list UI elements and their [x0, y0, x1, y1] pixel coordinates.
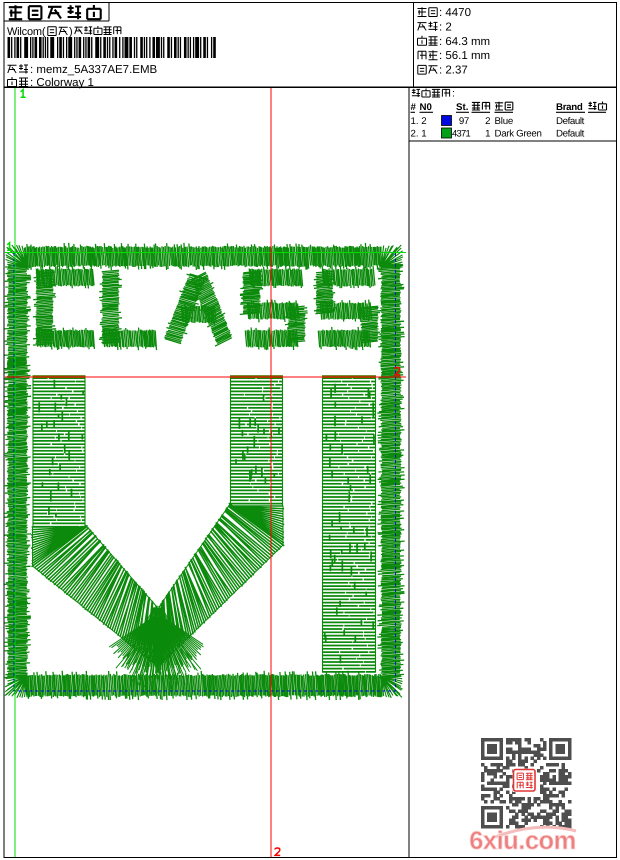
svg-text:: 2: : 2 [439, 21, 452, 33]
svg-text:: 64.3 mm: : 64.3 mm [439, 36, 490, 48]
svg-text:2. 1: 2. 1 [411, 128, 427, 139]
svg-text:: Colorway 1: : Colorway 1 [30, 77, 94, 89]
svg-text:Brand: Brand [556, 102, 583, 113]
svg-text:Blue: Blue [495, 116, 514, 127]
svg-text:1. 2: 1. 2 [411, 116, 427, 127]
svg-text:Default: Default [556, 116, 585, 127]
svg-text:#: # [411, 102, 417, 113]
svg-text:Wilcom(: Wilcom( [7, 26, 46, 38]
svg-text:Dark Green: Dark Green [495, 128, 542, 139]
svg-text:Default: Default [556, 128, 585, 139]
svg-text:: memz_5A337AE7.EMB: : memz_5A337AE7.EMB [30, 64, 158, 76]
svg-text:: 56.1 mm: : 56.1 mm [439, 50, 490, 62]
svg-text:6xiu.com: 6xiu.com [469, 827, 576, 855]
svg-text::: : [452, 88, 455, 100]
svg-text:: 2.37: : 2.37 [439, 65, 468, 77]
svg-text:: 4470: : 4470 [439, 7, 471, 19]
svg-text:4371: 4371 [452, 127, 471, 138]
svg-text:N0: N0 [420, 102, 432, 113]
svg-text:2: 2 [485, 116, 490, 127]
svg-text:97: 97 [459, 116, 469, 127]
svg-text:1: 1 [485, 128, 490, 139]
svg-text:St.: St. [456, 102, 469, 113]
svg-text:): ) [69, 26, 73, 38]
